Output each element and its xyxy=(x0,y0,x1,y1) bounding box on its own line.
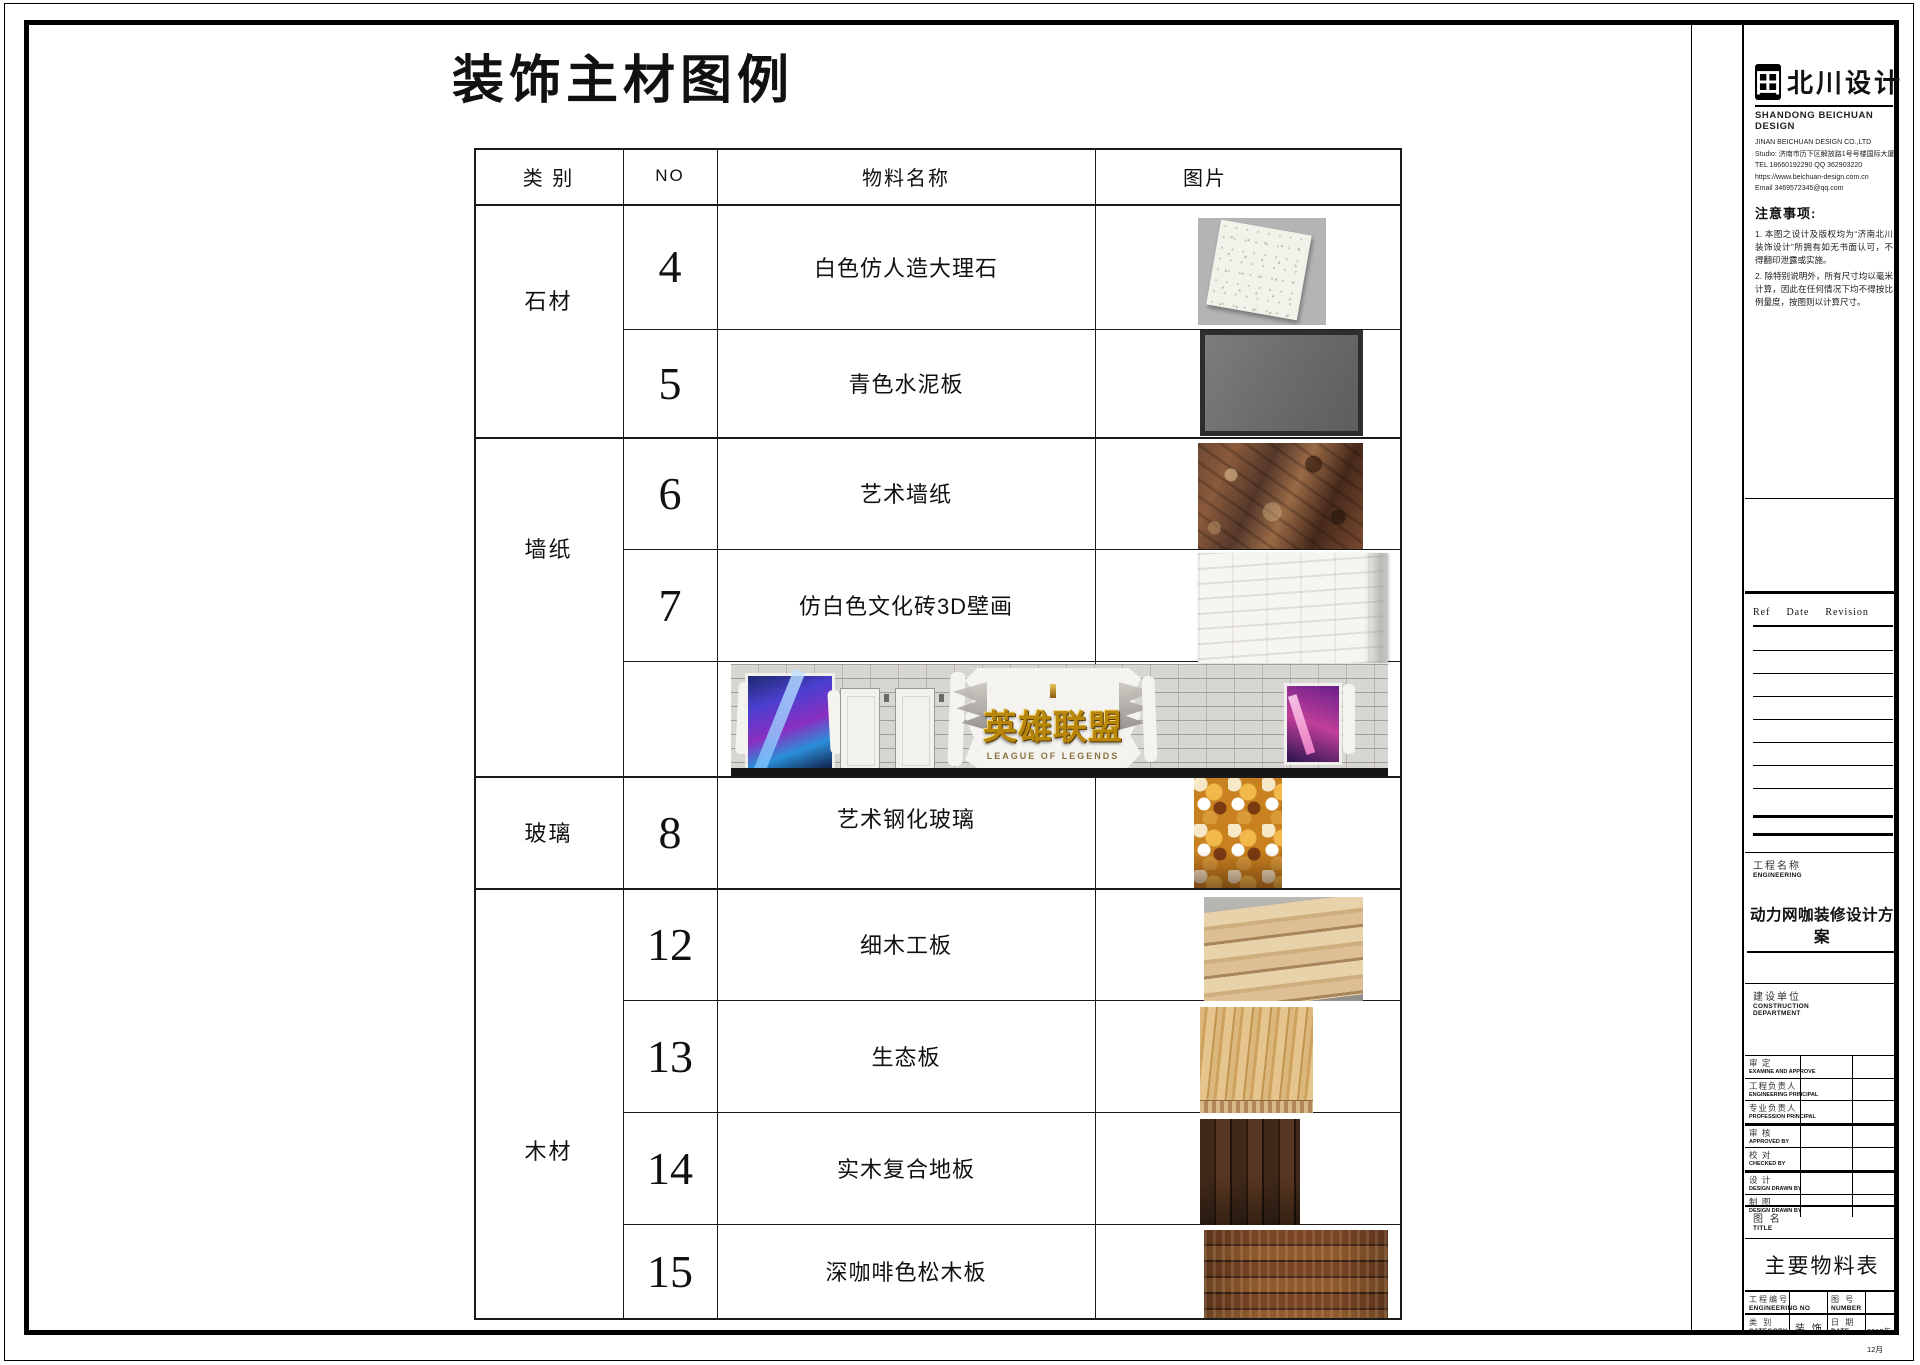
category-wood: 木材 xyxy=(474,1130,623,1170)
approval-row: 专业负责人PROFESSION PRINCIPAL xyxy=(1745,1100,1899,1123)
brand-logo: 田 北川设计 xyxy=(1755,63,1891,100)
header-name: 物料名称 xyxy=(717,148,1095,204)
row-no: 5 xyxy=(623,329,717,437)
mural-lol-logo: 英雄联盟 LEAGUE OF LEGENDS xyxy=(965,674,1141,770)
row-name: 艺术钢化玻璃 xyxy=(717,776,1095,888)
titleblock-left-line xyxy=(1742,25,1744,1330)
row-name: 生态板 xyxy=(717,1000,1095,1112)
notes-section: 注意事项: 1. 本图之设计及版权均为“济南北川装饰设计”所拥有如无书面认可，不… xyxy=(1755,203,1893,313)
row-no: 15 xyxy=(623,1224,717,1318)
image-eco-board xyxy=(1200,1007,1313,1113)
row-name: 实木复合地板 xyxy=(717,1112,1095,1224)
date-value: 2015年12月 xyxy=(1867,1327,1891,1354)
brand-logo-icon: 田 xyxy=(1755,64,1781,100)
company-info: JINAN BEICHUAN DESIGN CO.,LTD Studio: 济南… xyxy=(1755,137,1895,195)
title-block: 田 北川设计 SHANDONG BEICHUAN DESIGN JINAN BE… xyxy=(1745,25,1899,1335)
mural-door-2 xyxy=(895,688,935,772)
drawing-title-label: 图 名 TITLE xyxy=(1745,1205,1899,1238)
row-name: 细木工板 xyxy=(717,888,1095,1000)
image-dark-coffee-pine-board xyxy=(1204,1230,1388,1318)
image-art-tempered-glass xyxy=(1194,778,1282,888)
row-name: 艺术墙纸 xyxy=(717,437,1095,549)
approval-table: 审 定EXAMINE AND APPROVE 工程负责人ENGINEERING … xyxy=(1745,1055,1899,1217)
approval-row: 校 对CHECKED BY xyxy=(1745,1147,1899,1170)
notes-title: 注意事项: xyxy=(1755,203,1893,222)
approval-row: 审 核APPROVED BY xyxy=(1745,1123,1899,1148)
project-name: 动力网咖装修设计方案 xyxy=(1747,903,1897,953)
approval-row: 工程负责人ENGINEERING PRINCIPAL xyxy=(1745,1078,1899,1101)
engineering-label: 工程名称 ENGINEERING xyxy=(1753,857,1802,879)
image-gray-cement-board xyxy=(1200,330,1363,436)
sheet-title: 主要物料表 xyxy=(1745,1238,1899,1290)
row-no: 14 xyxy=(623,1112,717,1224)
lol-logo-text: 英雄联盟 xyxy=(983,700,1123,749)
row-no: 7 xyxy=(623,549,717,661)
page-title: 装饰主材图例 xyxy=(452,38,794,113)
row-no: 13 xyxy=(623,1000,717,1112)
sheet-divider-line xyxy=(1691,25,1692,1330)
footer-row-2: 类 别CATEGORY 装 饰 日 期DATE 2015年12月 xyxy=(1745,1313,1899,1335)
row-no: 6 xyxy=(623,437,717,549)
mural-door-1 xyxy=(840,688,880,772)
category-glass: 玻璃 xyxy=(474,812,623,852)
lol-logo-subtext: LEAGUE OF LEGENDS xyxy=(987,751,1120,761)
row-no: 12 xyxy=(623,888,717,1000)
row-name: 白色仿人造大理石 xyxy=(717,204,1095,329)
approval-row: 设 计DESIGN DRAWN BY xyxy=(1745,1170,1899,1195)
drawing-sheet: 装饰主材图例 类 别 NO 物料名称 图片 石材 墙纸 玻璃 木材 4 xyxy=(0,0,1920,1365)
brand-name: 北川设计 xyxy=(1787,63,1903,100)
header-category: 类 别 xyxy=(474,148,623,204)
row-no: 4 xyxy=(623,204,717,329)
image-white-artificial-marble xyxy=(1198,218,1326,325)
footer-row-1: 工程编号ENGINEERING NO 图 号NUMBER xyxy=(1745,1290,1899,1313)
image-white-culture-brick xyxy=(1198,553,1388,663)
header-no: NO xyxy=(623,148,717,204)
construction-label: 建设单位 CONSTRUCTION DEPARTMENT xyxy=(1753,988,1843,1017)
row-no: 8 xyxy=(623,776,717,888)
image-blockboard xyxy=(1204,897,1363,1001)
revision-header: Ref Date Revision xyxy=(1753,607,1891,618)
image-lol-wall-mural: 英雄联盟 LEAGUE OF LEGENDS xyxy=(731,664,1388,776)
row-name: 仿白色文化砖3D壁画 xyxy=(717,549,1095,661)
image-art-wallpaper xyxy=(1198,443,1363,549)
row-name: 深咖啡色松木板 xyxy=(717,1224,1095,1318)
category-value: 装 饰 xyxy=(1795,1324,1824,1335)
header-image: 图片 xyxy=(1095,148,1315,204)
approval-row: 审 定EXAMINE AND APPROVE xyxy=(1745,1055,1899,1078)
category-stone: 石材 xyxy=(474,280,623,320)
category-wallpaper: 墙纸 xyxy=(474,528,623,568)
mural-poster-right xyxy=(1287,686,1339,762)
brand-subtitle: SHANDONG BEICHUAN DESIGN xyxy=(1755,110,1895,132)
row-name: 青色水泥板 xyxy=(717,329,1095,437)
mural-poster-left xyxy=(748,676,832,768)
image-engineered-wood-floor xyxy=(1200,1119,1300,1225)
